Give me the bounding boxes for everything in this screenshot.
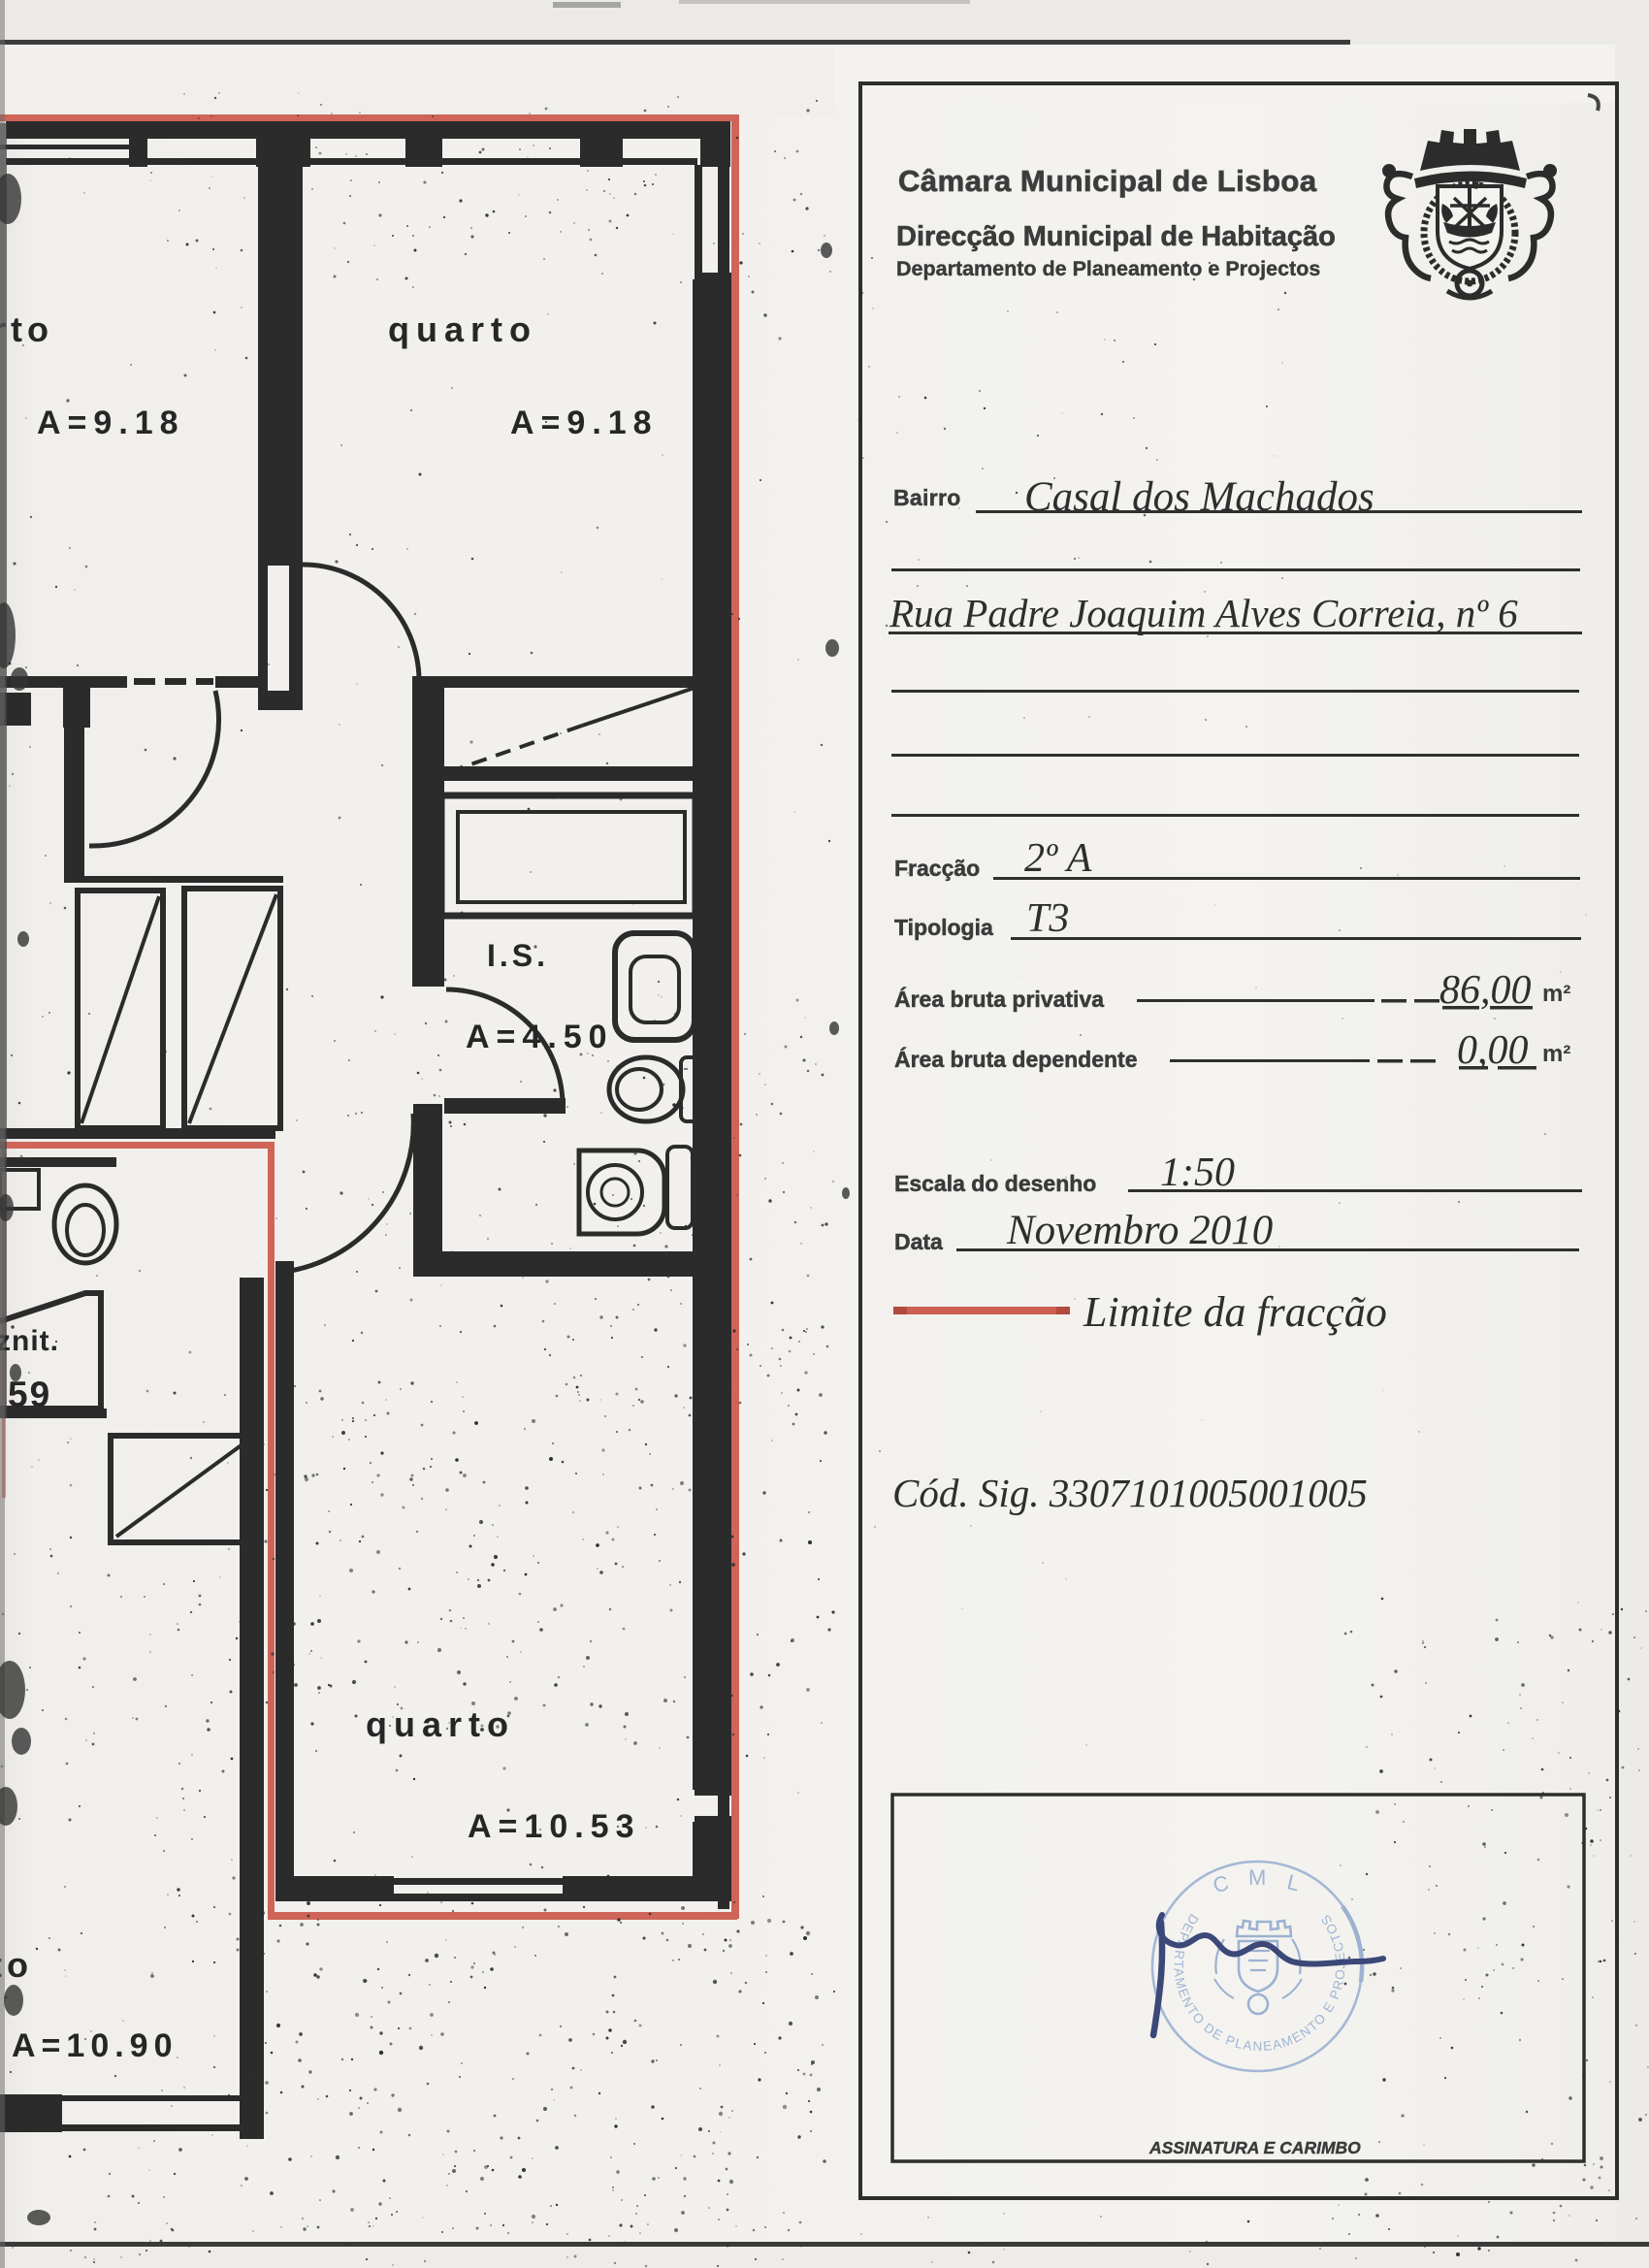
svg-text:znit.: znit.: [0, 1325, 59, 1357]
svg-text:L: L: [1285, 1869, 1303, 1895]
svg-text:Novembro 2010: Novembro 2010: [1006, 1208, 1273, 1253]
svg-text:rto: rto: [0, 309, 53, 349]
svg-text:A=10.53: A=10.53: [468, 1808, 641, 1845]
svg-text:Bairro: Bairro: [893, 485, 961, 510]
svg-text:m²: m²: [1542, 1041, 1570, 1067]
svg-text:to: to: [0, 1945, 33, 1985]
svg-text:Câmara Municipal de Lisboa: Câmara Municipal de Lisboa: [898, 164, 1317, 198]
svg-text:A=10.90: A=10.90: [12, 2027, 178, 2064]
svg-text:Área bruta privativa: Área bruta privativa: [894, 986, 1104, 1012]
svg-text:quarto: quarto: [388, 309, 537, 349]
svg-text:Departamento de Planeamento e: Departamento de Planeamento e Projectos: [896, 257, 1320, 280]
svg-text:A=4.50: A=4.50: [466, 1019, 614, 1055]
svg-text:Tipologia: Tipologia: [894, 915, 993, 940]
svg-text:quarto: quarto: [366, 1704, 515, 1744]
svg-text:Escala do desenho: Escala do desenho: [894, 1171, 1096, 1196]
svg-text:Fracção: Fracção: [894, 856, 980, 881]
svg-text:Área bruta dependente: Área bruta dependente: [894, 1046, 1138, 1072]
svg-text:1:50: 1:50: [1160, 1150, 1235, 1195]
svg-text:M: M: [1248, 1865, 1266, 1890]
svg-text:2º A: 2º A: [1024, 836, 1092, 881]
svg-text:I.S.: I.S.: [487, 938, 549, 973]
svg-text:m²: m²: [1542, 981, 1570, 1007]
svg-text:Cód. Sig. 3307101005001005: Cód. Sig. 3307101005001005: [892, 1471, 1368, 1515]
svg-text:Limite da fracção: Limite da fracção: [1083, 1288, 1387, 1336]
svg-text:Rua Padre Joaquim Alves Correi: Rua Padre Joaquim Alves Correia, nº 6: [889, 591, 1518, 635]
svg-text:T3: T3: [1026, 896, 1069, 941]
svg-text:Direcção Municipal de Habitaçã: Direcção Municipal de Habitação: [896, 221, 1336, 252]
svg-text:A=9.18: A=9.18: [510, 405, 659, 441]
svg-text:C: C: [1211, 1870, 1231, 1897]
svg-text:Data: Data: [894, 1229, 943, 1254]
svg-text:ASSINATURA E CARIMBO: ASSINATURA E CARIMBO: [1148, 2138, 1361, 2157]
svg-text:DEPARTAMENTO DE PLANEAMENTO E: DEPARTAMENTO DE PLANEAMENTO E PROJECTOS: [1171, 1911, 1347, 2054]
svg-text:A=9.18: A=9.18: [37, 405, 185, 441]
